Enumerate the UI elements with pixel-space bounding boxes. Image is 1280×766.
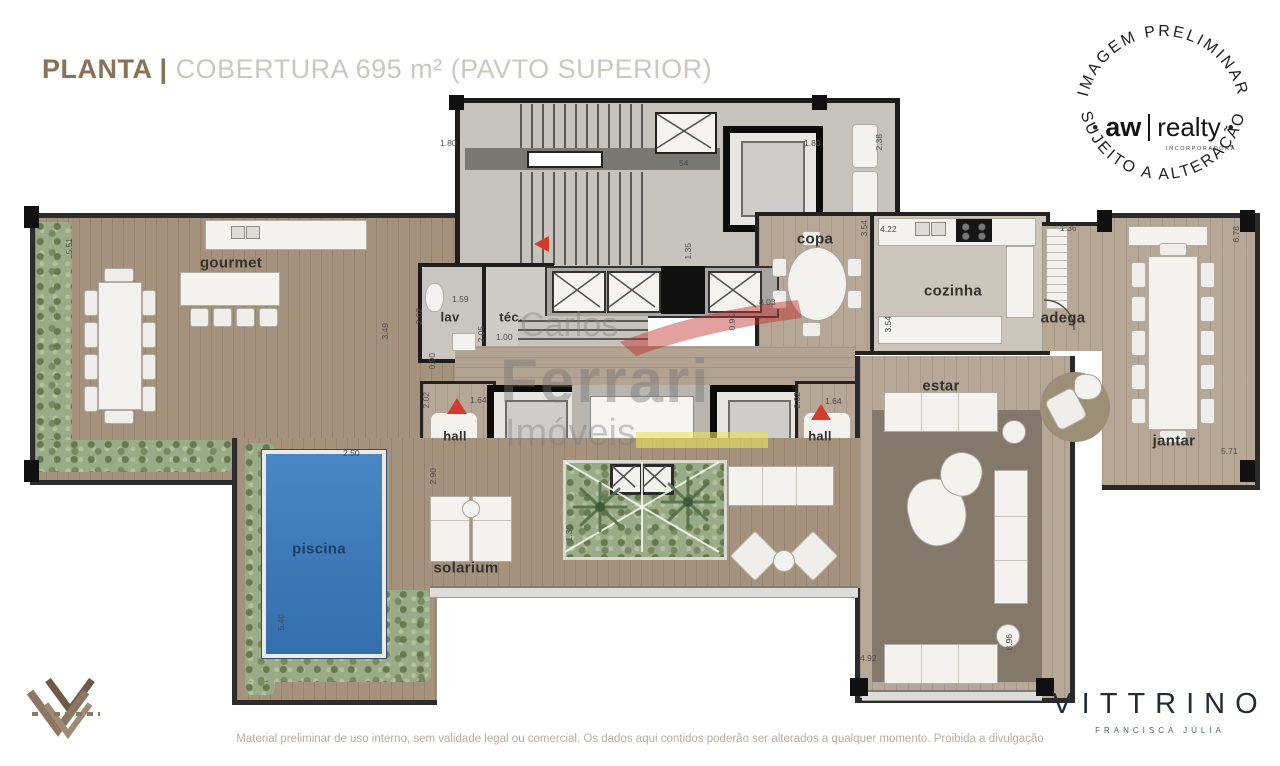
sink xyxy=(246,226,260,239)
chair xyxy=(1200,296,1215,322)
stair-handrail xyxy=(527,151,603,168)
watermark-yellow-bar xyxy=(636,432,768,448)
stairs-upper xyxy=(520,104,645,148)
dim-label: 8.96 xyxy=(1004,634,1014,651)
column xyxy=(24,460,39,482)
column xyxy=(24,206,39,228)
dim-label: 2.50 xyxy=(343,448,360,458)
chair xyxy=(1131,364,1146,390)
stool xyxy=(259,308,278,327)
kitchen-counter-bottom xyxy=(878,316,1002,344)
watermark-line3: Imóveis xyxy=(505,412,636,455)
planter-bottom-left xyxy=(36,440,232,472)
skylight-1 xyxy=(610,464,643,495)
stamp-top-text: IMAGEM PRELIMINAR xyxy=(1075,23,1251,99)
chair xyxy=(847,258,862,277)
room-label-jantar: jantar xyxy=(1153,433,1196,450)
planter-left xyxy=(36,222,72,468)
chair xyxy=(1131,296,1146,322)
stamp-dot-left: • xyxy=(1092,118,1098,138)
chair xyxy=(1159,243,1187,256)
dim-label: 1.35 xyxy=(683,243,693,260)
room-label-adega: adega xyxy=(1041,310,1086,327)
dim-label: 5.51 xyxy=(64,238,74,255)
awrealty-subtitle: INCORPORADORA xyxy=(1166,146,1236,152)
stamp-dot-right: • xyxy=(1228,118,1234,138)
kitchen-counter-right xyxy=(1006,246,1034,318)
disclaimer-text: Material preliminar de uso interno, sem … xyxy=(160,733,1120,745)
chair xyxy=(1200,398,1215,424)
dim-label: 1.80 xyxy=(804,138,821,148)
room-label-hall-right: hall xyxy=(808,429,832,444)
estar-balcony-edge xyxy=(862,690,1042,701)
sink xyxy=(915,222,930,236)
dim-label: 1.00 xyxy=(496,332,513,342)
dim-label: 5.71 xyxy=(1221,446,1238,456)
dim-label: 0.90 xyxy=(427,353,437,370)
chair xyxy=(104,268,134,282)
room-label-hall-left: hall xyxy=(443,429,467,444)
chair xyxy=(1200,364,1215,390)
cooktop xyxy=(956,219,992,242)
lav-sink xyxy=(452,333,476,351)
skylight-2 xyxy=(641,464,674,495)
dim-label: 4.92 xyxy=(860,653,877,663)
chair xyxy=(802,322,821,337)
ottoman xyxy=(1074,374,1102,400)
dim-label: 6.78 xyxy=(1231,226,1241,243)
gourmet-island xyxy=(180,272,280,306)
planter-pool-right xyxy=(382,590,430,678)
chair xyxy=(142,354,156,380)
stool xyxy=(236,308,255,327)
dim-label: 1.64 xyxy=(470,395,487,405)
gourmet-counter xyxy=(205,220,367,250)
dim-label: 5.40 xyxy=(276,614,286,631)
svg-text:IMAGEM PRELIMINAR: IMAGEM PRELIMINAR xyxy=(1075,23,1251,99)
title-primary: PLANTA | xyxy=(42,54,168,84)
stool xyxy=(190,308,209,327)
watermark-line2: Ferrari xyxy=(500,346,710,417)
toilet xyxy=(425,283,444,312)
side-table xyxy=(462,500,480,518)
chair xyxy=(1131,330,1146,356)
page-title: PLANTA | COBERTURA 695 m² (PAVTO SUPERIO… xyxy=(42,54,712,85)
sink xyxy=(931,222,946,236)
chair xyxy=(1131,398,1146,424)
dim-label: 0.95 xyxy=(727,314,737,331)
dim-label: 1.59 xyxy=(452,294,469,304)
dim-label: 8.03 xyxy=(759,297,776,307)
elevator-car xyxy=(741,141,805,217)
dim-label: 1.64 xyxy=(825,396,842,406)
room-label-gourmet: gourmet xyxy=(200,255,262,272)
wine-shelf xyxy=(1046,228,1068,310)
stairs-lower xyxy=(520,172,645,265)
column xyxy=(1240,460,1255,482)
chair xyxy=(142,322,156,348)
vittrino-monogram-icon xyxy=(22,668,110,760)
dim-label: 4.22 xyxy=(880,224,897,234)
watermark-line1: Carlos xyxy=(520,306,618,345)
room-label-cozinha: cozinha xyxy=(924,283,982,300)
floorplan-page: PLANTA | COBERTURA 695 m² (PAVTO SUPERIO… xyxy=(0,0,1280,766)
dim-label: 2.90 xyxy=(428,468,438,485)
title-secondary: COBERTURA 695 m² (PAVTO SUPERIOR) xyxy=(176,54,713,84)
column xyxy=(812,95,827,110)
bench xyxy=(728,466,834,506)
room-label-copa: copa xyxy=(797,231,833,248)
column xyxy=(449,95,464,110)
dim-label: 1.36 xyxy=(1060,223,1077,233)
closet-shelf-2 xyxy=(852,171,878,215)
chair xyxy=(142,290,156,316)
awrealty-logo: • aw realty • xyxy=(1058,112,1268,143)
dim-label: 2.02 xyxy=(792,392,802,409)
sofa-bottom xyxy=(884,644,998,684)
sofa-top xyxy=(884,392,998,432)
copa-table xyxy=(787,247,847,321)
chair xyxy=(104,410,134,424)
chair xyxy=(847,290,862,309)
preliminary-stamp: IMAGEM PRELIMINAR SUJEITO A ALTERAÇÃO • … xyxy=(1058,8,1268,218)
jantar-table xyxy=(1148,256,1198,430)
room-label-solarium: solarium xyxy=(434,560,499,577)
side-table xyxy=(773,550,795,572)
chair xyxy=(1200,262,1215,288)
sink xyxy=(231,226,245,239)
chair xyxy=(84,386,98,412)
sofa-right xyxy=(994,470,1028,604)
awrealty-realty: realty xyxy=(1157,112,1221,143)
chair xyxy=(772,258,787,277)
chair xyxy=(84,322,98,348)
shaft-x3 xyxy=(708,271,762,313)
stool xyxy=(213,308,232,327)
dim-label: 1.80 xyxy=(440,138,457,148)
deck-edge xyxy=(430,586,858,598)
dim-label: 54 xyxy=(679,158,688,168)
vittrino-brand: VITTRINO xyxy=(1052,688,1268,721)
dim-label: 3.54 xyxy=(859,220,869,237)
room-label-piscina: piscina xyxy=(292,541,346,558)
room-label-lav: lav xyxy=(441,310,460,325)
column xyxy=(850,678,868,696)
awrealty-aw: aw xyxy=(1105,112,1141,143)
room-label-estar: estar xyxy=(922,378,959,395)
chair xyxy=(142,386,156,412)
dim-label: 1.30 xyxy=(564,525,574,542)
awrealty-divider xyxy=(1148,114,1150,141)
dim-label: 2.05 xyxy=(476,326,486,343)
side-table xyxy=(1002,420,1026,444)
dim-label: 3.49 xyxy=(380,323,390,340)
chair xyxy=(1131,262,1146,288)
chair xyxy=(1200,330,1215,356)
service-shaft xyxy=(655,112,717,154)
dim-label: 2.02 xyxy=(414,308,424,325)
gourmet-dining-table xyxy=(98,282,142,410)
chair xyxy=(84,354,98,380)
shaft-solid xyxy=(661,266,705,314)
dim-label: 2.02 xyxy=(421,392,431,409)
dim-label: 3.54 xyxy=(883,316,893,333)
chair xyxy=(84,290,98,316)
dim-label: 2.38 xyxy=(874,134,884,151)
